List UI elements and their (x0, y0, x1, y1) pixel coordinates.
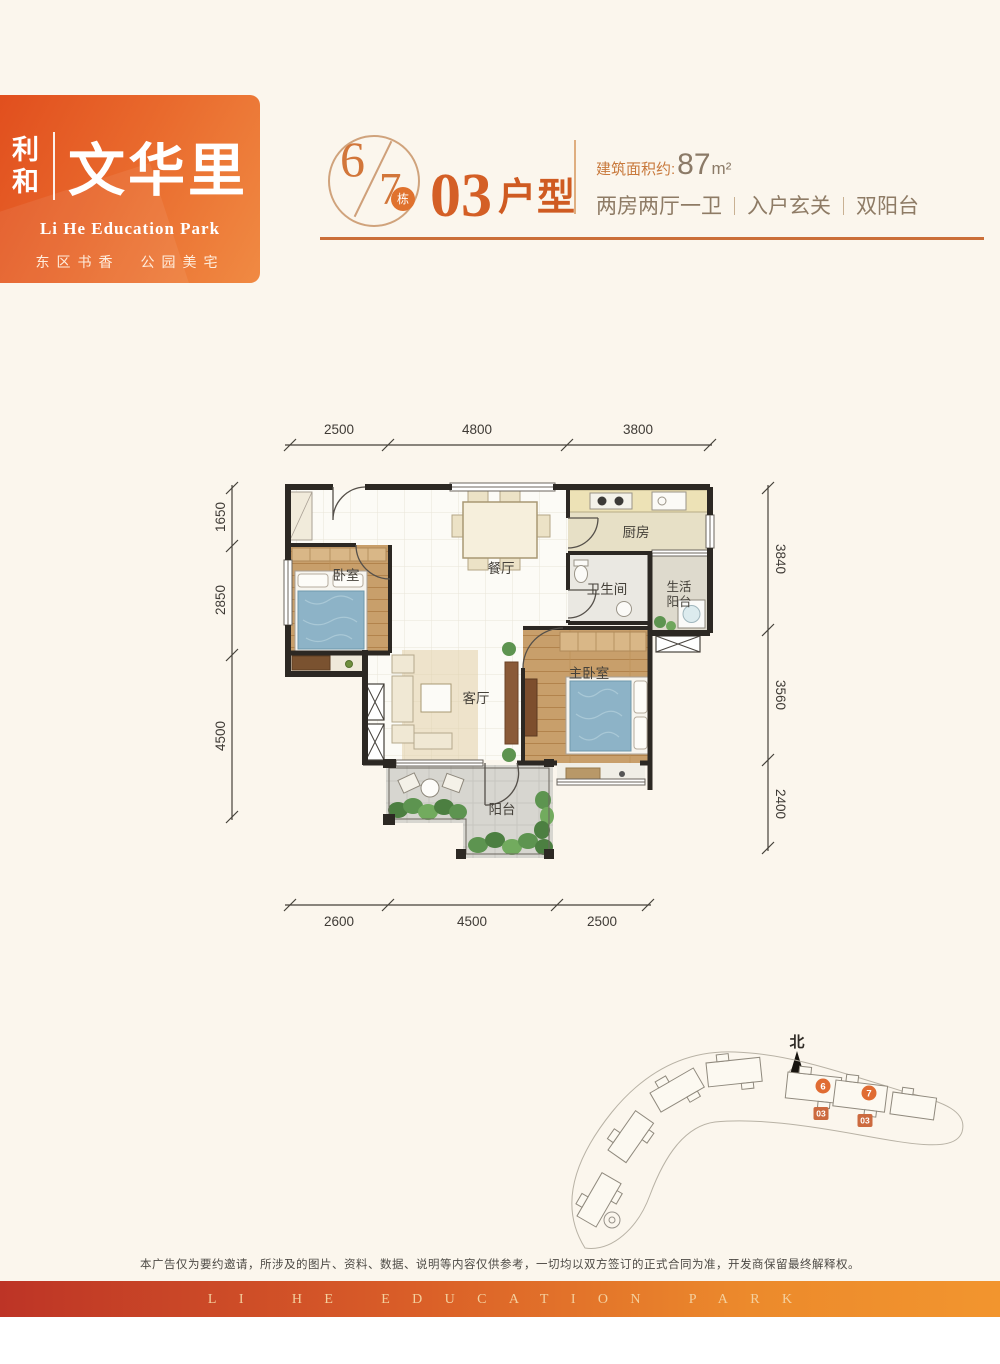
plant (502, 642, 516, 656)
header-vertical-divider (574, 140, 576, 214)
room-label-dining: 餐厅 (488, 561, 515, 576)
floorplan-poster: 利 和 文华里 Li He Education Park 东区书香 公园美宅 6… (0, 0, 1000, 1364)
unit-code: 03 (430, 169, 492, 224)
area-unit: m² (712, 159, 732, 179)
kitchen-counter (568, 490, 710, 512)
site-roundabout (604, 1212, 620, 1228)
brand-divider (53, 132, 55, 200)
dim-right-3: 2400 (773, 789, 788, 819)
dim-top-1: 2500 (324, 422, 354, 437)
feature-list: 两房两厅一卫入户玄关双阳台 (596, 190, 919, 220)
dim-left-1: 1650 (213, 502, 228, 532)
brand-name-row: 利 和 文华里 (0, 125, 260, 207)
site-plan: 北 6 7 03 03 (555, 1015, 985, 1265)
room-label-kitchen: 厨房 (623, 525, 650, 540)
dim-right-1: 3840 (773, 544, 788, 574)
footer-banner-text: LI HE EDUCATION PARK (208, 1292, 815, 1307)
building-7-marker-label: 7 (866, 1089, 871, 1100)
floor-plan: 卧室 餐厅 厨房 卫生间 生活 阳台 客厅 主卧室 阳台 2500 4800 3… (170, 415, 820, 950)
footer-banner: LI HE EDUCATION PARK (0, 1281, 1000, 1317)
unit-title: 03 户型 (430, 142, 576, 224)
room-label-bedroom: 卧室 (333, 567, 360, 583)
dim-top-2: 4800 (462, 422, 492, 437)
area-prefix: 建筑面积约: (596, 158, 675, 179)
building-footprints (571, 1050, 937, 1230)
brand-name-main: 文华里 (68, 125, 248, 207)
room-label-master: 主卧室 (569, 665, 610, 681)
brand-char-1: 利 (12, 134, 40, 166)
ac-platform (656, 636, 700, 652)
dim-right-2: 3560 (773, 680, 788, 710)
feature-balconies: 双阳台 (856, 195, 919, 218)
brand-logo: 利 和 文华里 Li He Education Park 东区书香 公园美宅 (0, 95, 260, 283)
unit-type-label: 户型 (498, 166, 576, 221)
unit-03-marker-label: 03 (816, 1109, 826, 1119)
plant (654, 616, 666, 628)
dim-left-3: 4500 (213, 721, 228, 751)
room-label-living: 客厅 (463, 690, 490, 706)
dim-left-2: 2850 (213, 585, 228, 615)
building-number-6: 6 (340, 130, 365, 188)
room-label-utility-2: 阳台 (666, 594, 691, 609)
dim-bottom-1: 2600 (324, 914, 354, 929)
site-roundabout-inner (609, 1217, 615, 1223)
room-label-utility-1: 生活 (666, 580, 691, 594)
unit-03-marker-label: 03 (860, 1116, 870, 1126)
building-6-marker-label: 6 (820, 1082, 825, 1093)
feature-separator (734, 197, 735, 215)
dim-top-3: 3800 (623, 422, 653, 437)
dim-bottom-3: 2500 (587, 914, 617, 929)
dining-table-set (452, 491, 550, 570)
header-rule (320, 237, 984, 240)
brand-name-vertical: 利 和 (12, 134, 40, 199)
brand-tagline-en: Li He Education Park (0, 219, 260, 239)
area-value: 87 (677, 148, 710, 182)
plant (502, 748, 516, 762)
plant (666, 621, 676, 631)
north-label: 北 (789, 1034, 804, 1051)
building-unit-badge: 栋 (391, 187, 415, 211)
dim-bottom-2: 4500 (457, 914, 487, 929)
area-info: 建筑面积约: 87 m² (596, 148, 731, 182)
feature-foyer: 入户玄关 (747, 195, 831, 218)
brand-tagline-cn: 东区书香 公园美宅 (0, 252, 260, 272)
feature-separator (843, 197, 844, 215)
room-label-balcony: 阳台 (489, 802, 516, 817)
disclaimer-text: 本广告仅为要约邀请，所涉及的图片、资料、数据、说明等内容仅供参考，一切均以双方签… (0, 1256, 1000, 1272)
brand-char-2: 和 (12, 166, 40, 198)
dresser (524, 679, 537, 736)
bottom-margin (0, 1317, 1000, 1364)
tv-console (505, 662, 518, 744)
room-label-bathroom: 卫生间 (587, 582, 628, 597)
feature-rooms: 两房两厅一卫 (596, 195, 722, 218)
